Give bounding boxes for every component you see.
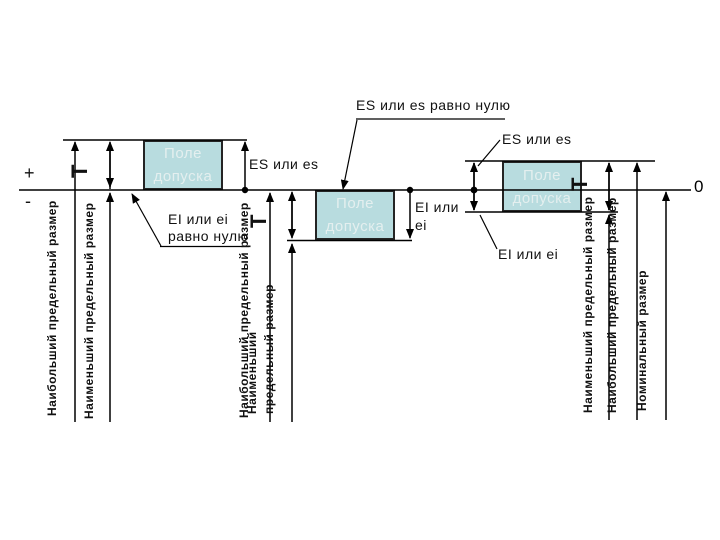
dim-label-max-left: Наибольший предельный размер xyxy=(45,200,59,416)
dim-label-min-middle: Наименьший предельный размер xyxy=(244,249,278,414)
tolerance-field-label: Поле допуска xyxy=(317,192,393,238)
tolerance-fields-diagram: Поле допуска Поле допуска Поле допуска xyxy=(0,0,720,540)
label-ei-right: EI или ei xyxy=(498,246,558,262)
tolerance-symbol-middle: Т xyxy=(248,215,270,228)
tolerance-field-box-middle: Поле допуска xyxy=(315,190,395,240)
tolerance-symbol-left: Т xyxy=(69,165,91,178)
leader-es-zero xyxy=(343,120,357,189)
dim-label-min-right: Наименьший предельный размер xyxy=(581,197,595,413)
tolerance-field-box-left: Поле допуска xyxy=(143,140,223,190)
zero-mark: 0 xyxy=(694,177,703,197)
dim-label-max-right: Наибольший предельный размер xyxy=(605,197,619,413)
dim-label-nominal-right: Номинальный размер xyxy=(635,270,649,411)
zero-line-dot-right xyxy=(471,187,478,194)
plus-sign: + xyxy=(24,164,35,182)
dim-label-min-left: Наименьший предельный размер xyxy=(82,203,96,419)
callout-es-equals-zero: ES или es равно нулю xyxy=(356,97,510,113)
tolerance-field-label: Поле допуска xyxy=(145,142,221,188)
label-ei-middle: EI или ei xyxy=(415,198,467,234)
leader-es-right xyxy=(478,140,500,166)
label-es-left: ES или es xyxy=(249,156,319,172)
leader-ei-zero xyxy=(132,194,161,246)
label-es-right: ES или es xyxy=(502,131,572,147)
zero-line-dot-middle xyxy=(407,187,413,193)
minus-sign: - xyxy=(25,192,31,210)
zero-line-dot-left xyxy=(242,187,248,193)
leader-ei-right xyxy=(480,215,497,249)
tolerance-symbol-right: Т xyxy=(569,178,591,191)
